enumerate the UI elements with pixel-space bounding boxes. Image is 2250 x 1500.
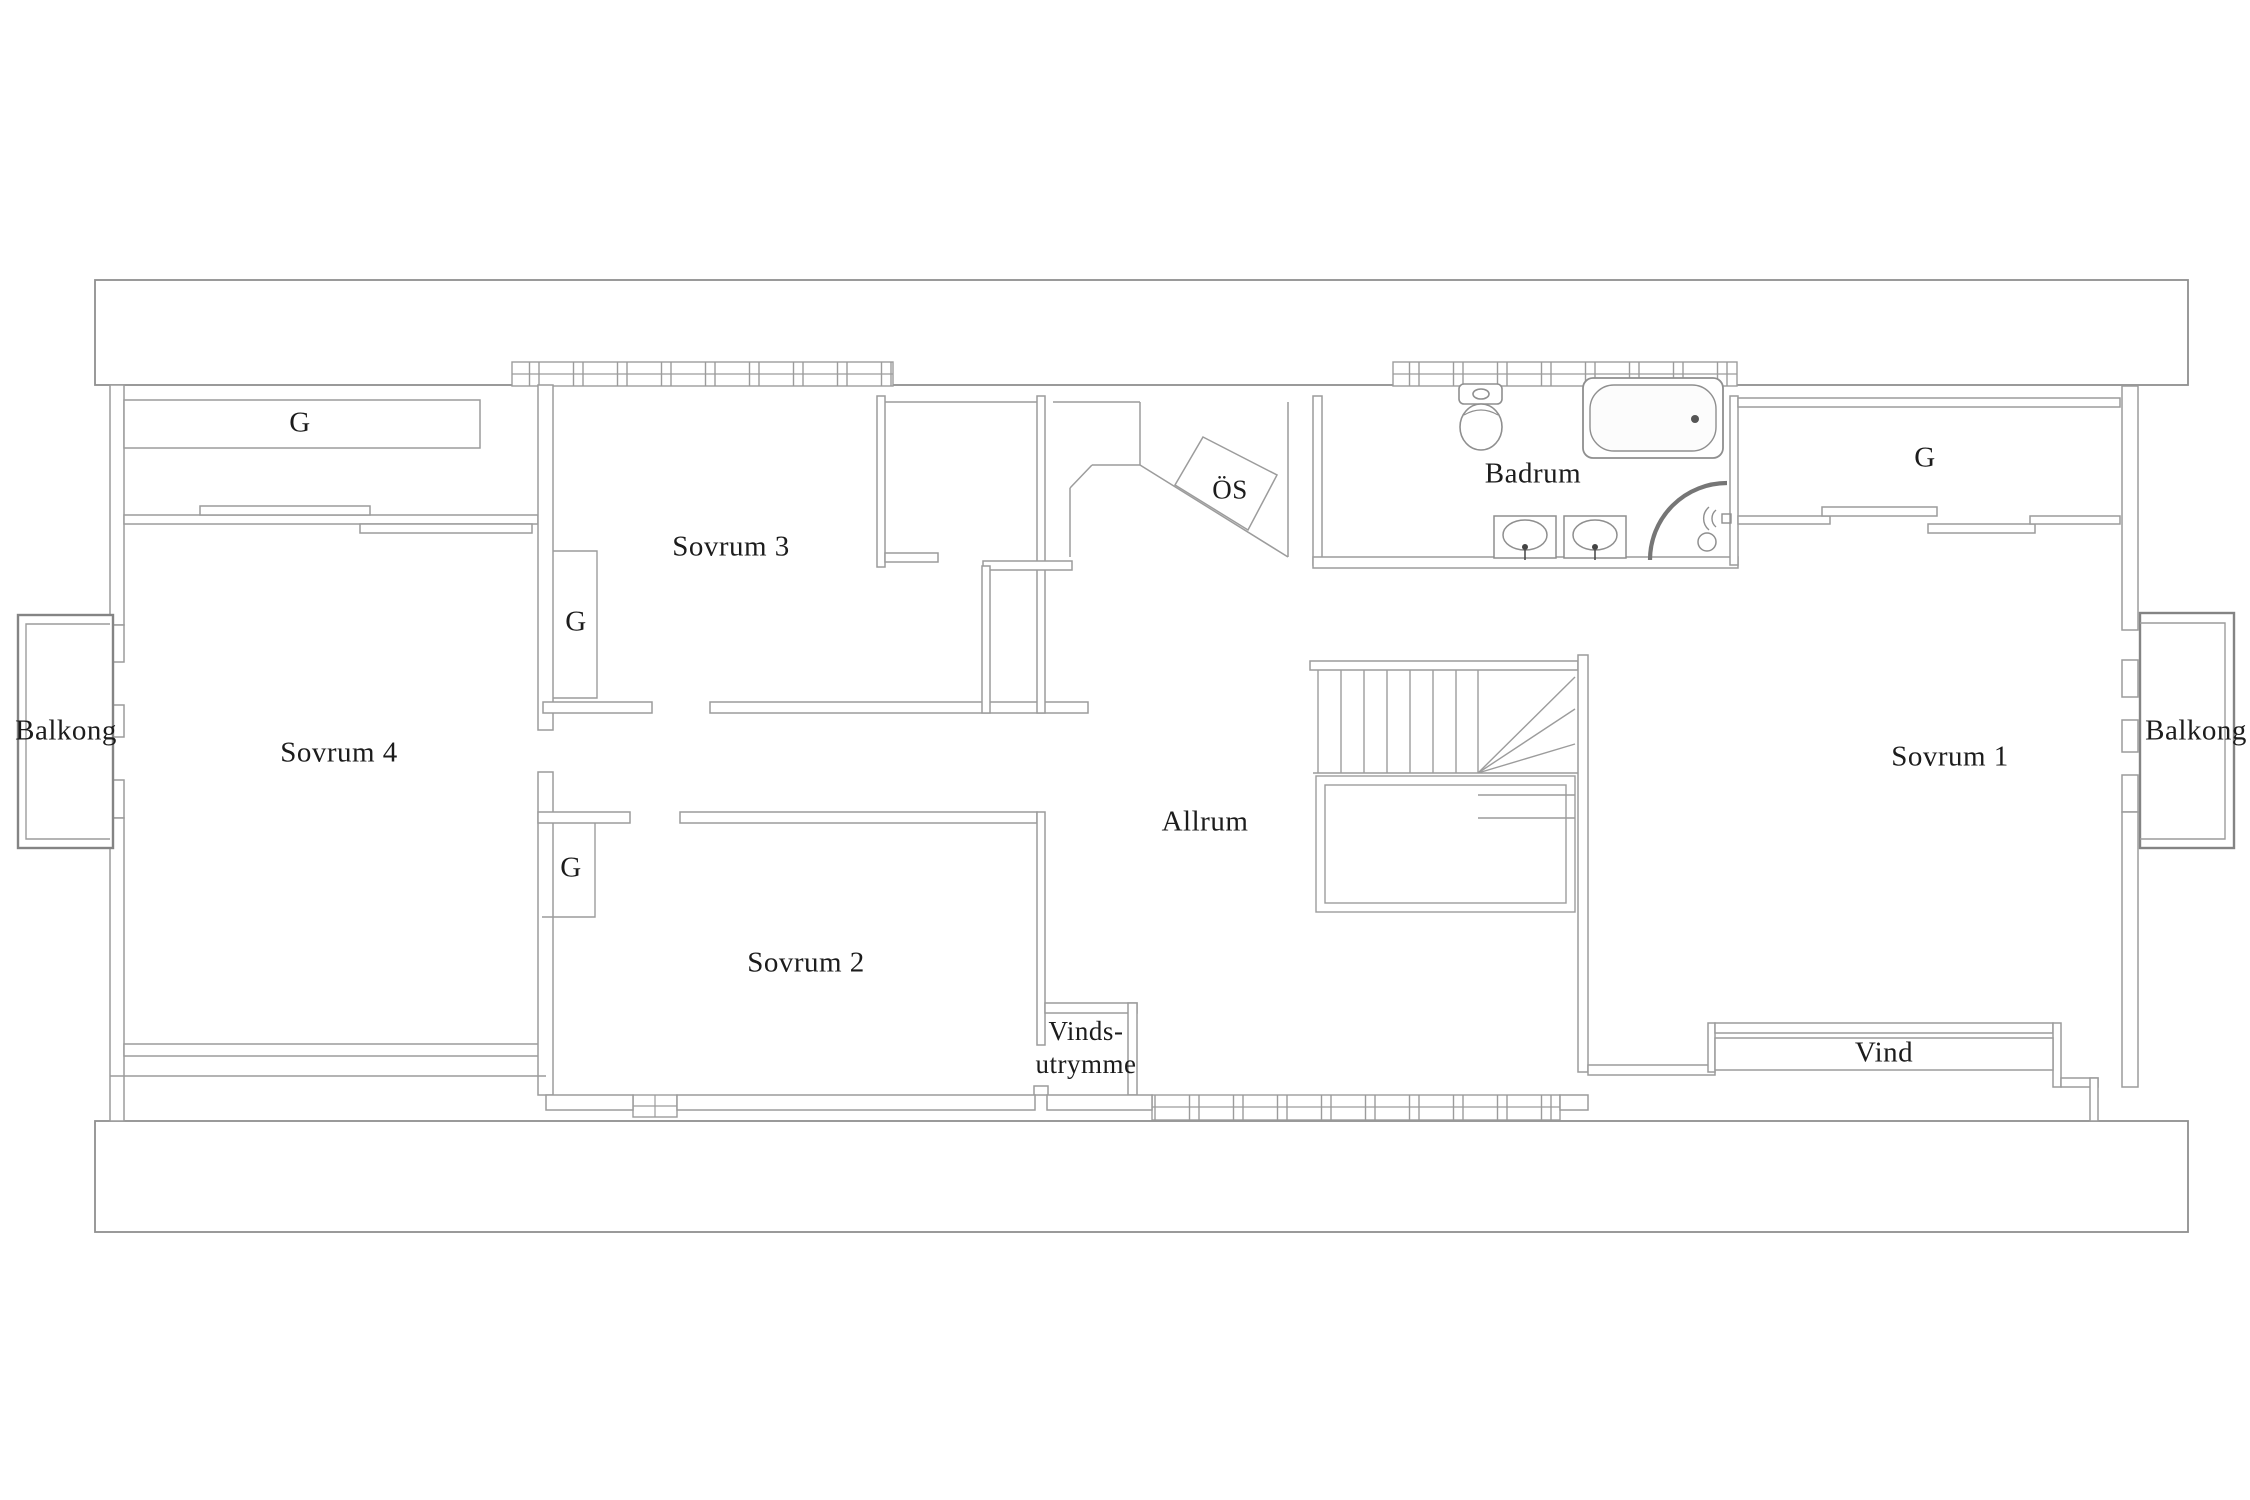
room-label-vind: Vind <box>1855 1037 1913 1070</box>
wall-left-upper <box>110 385 124 625</box>
balcony-label-left: Balkong <box>15 715 117 748</box>
wall-sovrum1-south <box>1715 1023 2053 1033</box>
wall-bottom-b <box>677 1095 1035 1110</box>
staircase <box>1313 670 1578 912</box>
wall-closet-divider <box>982 566 990 713</box>
window-strip-bottom <box>1152 1095 1560 1120</box>
room-label-sovrum1: Sovrum 1 <box>1891 741 2009 774</box>
wall-bottom-c <box>1047 1095 1152 1110</box>
wall-sovrum2-north-b <box>680 812 1037 823</box>
window-strip-top-left <box>512 362 893 386</box>
wall-sovrum1-se-c <box>2090 1078 2098 1121</box>
closet-sovrum4-track <box>124 515 538 524</box>
wall-bottom-a <box>546 1095 633 1110</box>
closet-sovrum1-track-a <box>1738 516 1830 524</box>
balcony-door-right-center <box>2122 720 2138 752</box>
room-label-sovrum3: Sovrum 3 <box>672 531 790 564</box>
wall-sovrum1-south-low <box>1588 1065 1715 1075</box>
wall-center-upper <box>538 385 553 730</box>
closet-label-sovrum4: G <box>289 407 310 440</box>
wall-right-upper <box>2122 386 2138 630</box>
closet-sovrum4-door2 <box>360 524 532 533</box>
wall-closet-east <box>1037 396 1045 713</box>
walls <box>110 385 2138 1121</box>
wall-sovrum1-se-a <box>2053 1023 2061 1087</box>
double-sink-icon <box>1494 516 1626 560</box>
closet-label-sovrum2: G <box>560 852 581 885</box>
balcony-door-right-leaf2 <box>2122 775 2138 812</box>
wall-sovrum2-east <box>1037 812 1045 1045</box>
closet-label-sovrum1: G <box>1914 442 1935 475</box>
closet-sovrum1-door1 <box>1822 507 1937 516</box>
wall-badrum-west <box>1313 396 1322 565</box>
balcony-label-right: Balkong <box>2145 715 2247 748</box>
room-label-badrum: Badrum <box>1485 458 1581 491</box>
toilet-icon <box>1459 384 1502 450</box>
wall-sovrum3-south-b <box>710 702 1088 713</box>
floorplan-canvas: Sovrum 4 Sovrum 3 Sovrum 2 Sovrum 1 Allr… <box>0 0 2250 1500</box>
wall-sovrum3-south-a <box>543 702 652 713</box>
wall-sovrum1-step <box>1708 1023 1715 1072</box>
room-label-vindsutrymme: Vinds- utrymme <box>1036 1015 1137 1081</box>
wall-sovrum2-north-a <box>538 812 630 823</box>
stairwell-void-outer <box>1316 776 1575 912</box>
closet-sovrum1-door2 <box>1928 524 2035 533</box>
wall-stair-north <box>1310 661 1578 670</box>
balcony-door-right-leaf1 <box>2122 660 2138 697</box>
wall-sovrum4-south <box>124 1044 546 1056</box>
fireplace-niche <box>1053 402 1288 557</box>
closet-sovrum1-north <box>1738 398 2120 407</box>
bottom-eave-band <box>95 1121 2188 1232</box>
room-label-sovrum4: Sovrum 4 <box>280 737 398 770</box>
wall-sovrum3-east <box>877 396 885 567</box>
shower-icon <box>1650 483 1731 560</box>
bathtub-icon <box>1583 378 1723 458</box>
wall-stair-east <box>1578 655 1588 1072</box>
top-eave-band <box>95 280 2188 385</box>
wall-bottom-notch <box>1034 1086 1048 1095</box>
fireplace-label: ÖS <box>1212 475 1248 506</box>
wall-right-lower <box>2122 812 2138 1087</box>
room-label-allrum: Allrum <box>1162 806 1249 839</box>
wall-badrum-east <box>1730 396 1738 565</box>
wall-vindsutrymme-north <box>1045 1003 1137 1013</box>
window-bottom-small <box>633 1095 677 1117</box>
vindsutrymme-line1: Vinds- <box>1036 1015 1137 1048</box>
vindsutrymme-line2: utrymme <box>1036 1048 1137 1081</box>
closet-a-door2 <box>983 561 1072 570</box>
closet-a-door1 <box>885 553 938 562</box>
wall-bottom-d <box>1560 1095 1588 1110</box>
room-label-sovrum2: Sovrum 2 <box>747 947 865 980</box>
closet-label-sovrum3: G <box>565 606 586 639</box>
wall-lines <box>110 402 1037 1076</box>
closet-sovrum4-door1 <box>200 506 370 515</box>
stairwell-void-inner <box>1325 785 1566 903</box>
closet-sovrum1-track-b <box>2030 516 2120 524</box>
